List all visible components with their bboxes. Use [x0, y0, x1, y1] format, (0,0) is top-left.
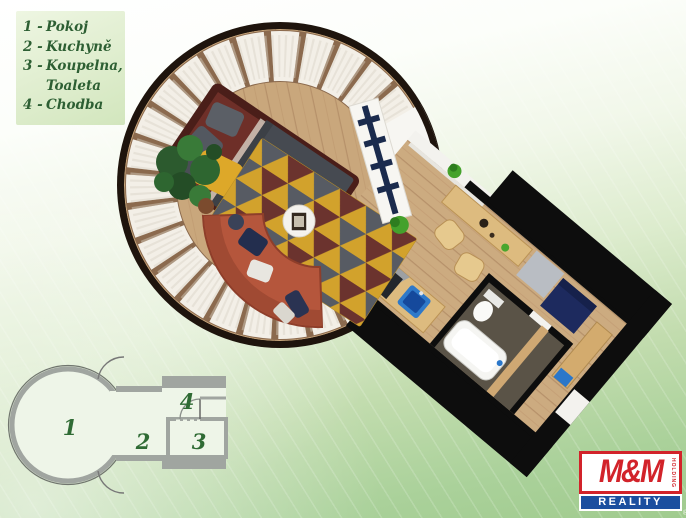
legend-number: 3 -	[23, 57, 46, 96]
listing-image: 1 2 3 4 1 - Pokoj 2 - Kuchyně 3 - Koupel…	[0, 0, 686, 518]
room-legend: 1 - Pokoj 2 - Kuchyně 3 - Koupelna, Toal…	[16, 11, 125, 125]
logo-reality-text: REALITY	[598, 497, 663, 508]
mini-wall	[116, 455, 166, 461]
legend-item: 4 - Chodba	[23, 96, 122, 116]
legend-number: 1 -	[23, 18, 46, 38]
mini-floor-plan: 1 2 3 4	[9, 357, 227, 493]
coffee-table	[283, 205, 315, 237]
mini-label-room4: 4	[180, 389, 195, 414]
agency-logo: M&M HOLDING REALITY ®	[579, 451, 682, 511]
mini-label-room1: 1	[63, 415, 78, 440]
logo-brand-text: M&M	[599, 456, 662, 488]
legend-label: Pokoj	[46, 18, 122, 38]
legend-item: 1 - Pokoj	[23, 18, 122, 38]
legend-label: Koupelna, Toaleta	[46, 57, 123, 96]
tray-inner	[294, 216, 304, 227]
logo-mm-box: M&M HOLDING	[579, 451, 682, 494]
legend-number: 2 -	[23, 38, 46, 58]
sofa-pillow-gray	[228, 214, 244, 230]
legend-label: Chodba	[46, 96, 122, 116]
legend-item: 2 - Kuchyně	[23, 38, 122, 58]
mini-wall	[162, 376, 226, 388]
plant-foliage	[206, 144, 222, 160]
logo-reality-bar: REALITY	[579, 494, 682, 511]
legend-number: 4 -	[23, 96, 46, 116]
mini-label-room2: 2	[135, 429, 151, 454]
plant-pot	[198, 198, 214, 214]
plant-foliage	[154, 172, 174, 192]
legend-item: 3 - Koupelna, Toaleta	[23, 57, 122, 96]
logo-holding-text: HOLDING	[670, 456, 676, 490]
mini-wall	[116, 386, 166, 392]
mini-label-room3: 3	[192, 429, 207, 454]
legend-label: Kuchyně	[46, 38, 122, 58]
